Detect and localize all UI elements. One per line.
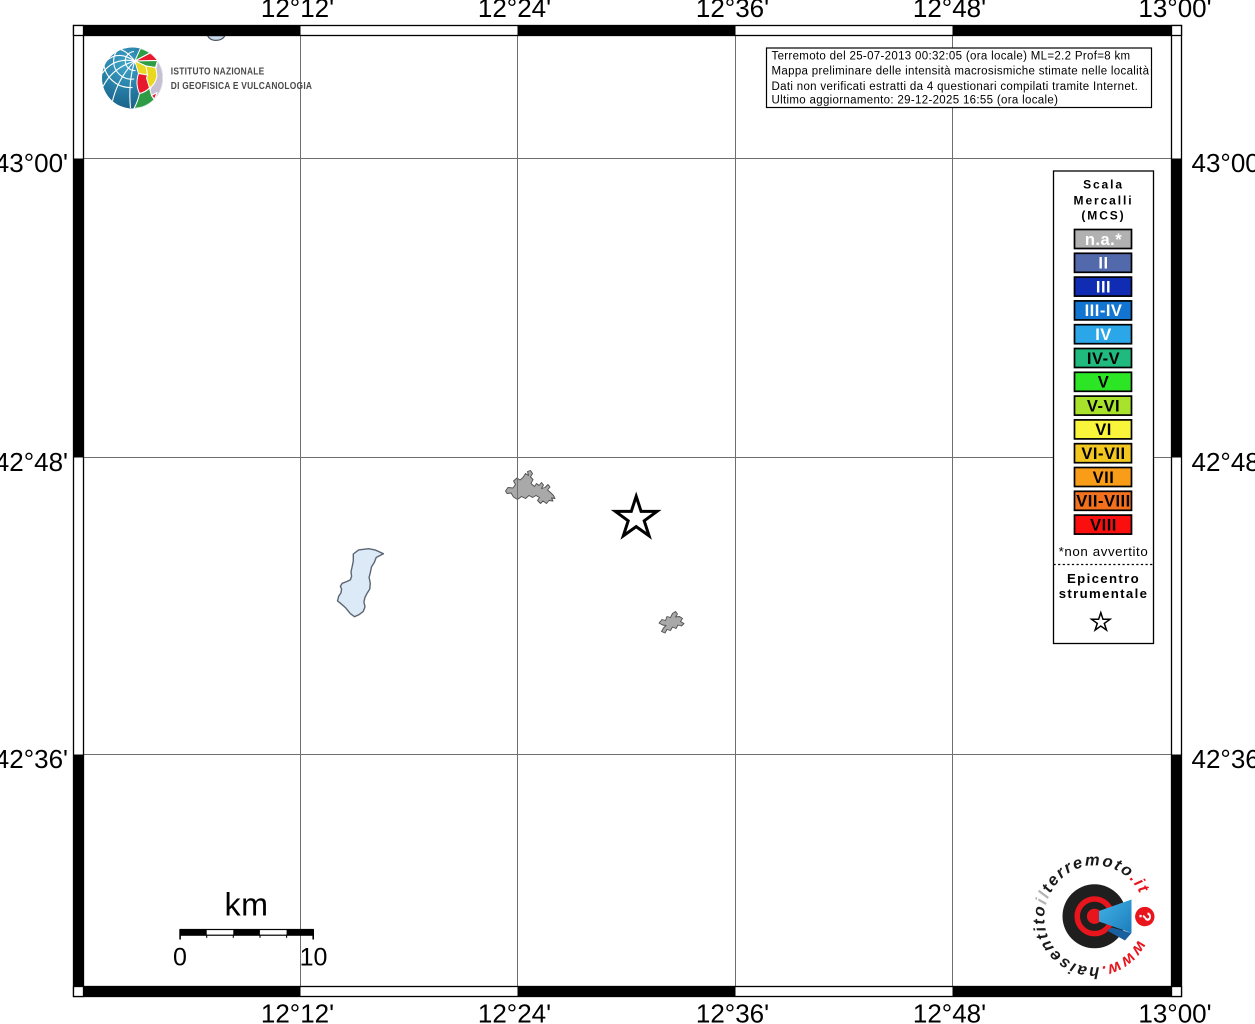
svg-text:IV-V: IV-V [1087, 350, 1120, 368]
svg-text:III-IV: III-IV [1085, 302, 1123, 320]
svg-text:12°48': 12°48' [913, 0, 986, 23]
svg-text:VIII: VIII [1090, 516, 1117, 534]
svg-text:IV: IV [1095, 326, 1112, 344]
svg-text:12°12': 12°12' [261, 998, 334, 1024]
svg-text:Mappa preliminare delle intens: Mappa preliminare delle intensità macros… [772, 66, 1150, 78]
svg-text:(MCS): (MCS) [1081, 208, 1125, 222]
svg-text:VI-VII: VI-VII [1081, 445, 1125, 463]
svg-text:Scala: Scala [1083, 177, 1124, 191]
svg-text:DI GEOFISICA E VULCANOLOGIA: DI GEOFISICA E VULCANOLOGIA [171, 80, 312, 92]
svg-text:*non avvertito: *non avvertito [1059, 544, 1149, 559]
svg-text:12°36': 12°36' [696, 0, 769, 23]
svg-text:V: V [1098, 374, 1110, 392]
svg-text:Mercalli: Mercalli [1074, 193, 1134, 207]
svg-text:42°36': 42°36' [1192, 744, 1255, 774]
svg-text:0: 0 [173, 944, 187, 972]
svg-text:km: km [224, 886, 268, 922]
svg-text:12°24': 12°24' [478, 998, 551, 1024]
svg-text:42°36': 42°36' [0, 744, 68, 774]
svg-text:Terremoto del 25-07-2013 00:32: Terremoto del 25-07-2013 00:32:05 (ora l… [772, 51, 1131, 63]
svg-text:II: II [1098, 255, 1108, 273]
svg-text:?: ? [1135, 911, 1153, 922]
svg-text:42°48': 42°48' [0, 447, 68, 477]
svg-text:43°00': 43°00' [1192, 148, 1255, 178]
svg-text:13°00': 13°00' [1138, 998, 1211, 1024]
svg-text:V-VI: V-VI [1087, 397, 1120, 415]
svg-text:Ultimo aggiornamento: 29-12-20: Ultimo aggiornamento: 29-12-2025 16:55 (… [772, 95, 1059, 107]
svg-text:VI: VI [1095, 421, 1112, 439]
svg-text:12°24': 12°24' [478, 0, 551, 23]
svg-text:III: III [1096, 278, 1111, 296]
svg-text:Epicentro: Epicentro [1067, 571, 1140, 586]
svg-text:10: 10 [300, 944, 328, 972]
svg-text:n.a.*: n.a.* [1085, 231, 1122, 249]
svg-text:strumentale: strumentale [1059, 586, 1149, 601]
svg-text:VII-VIII: VII-VIII [1076, 493, 1130, 511]
svg-text:Dati non verificati estratti d: Dati non verificati estratti da 4 questi… [772, 81, 1139, 93]
svg-text:13°00': 13°00' [1138, 0, 1211, 23]
svg-text:43°00': 43°00' [0, 148, 68, 178]
svg-text:12°12': 12°12' [261, 0, 334, 23]
svg-text:42°48': 42°48' [1192, 447, 1255, 477]
svg-text:12°48': 12°48' [913, 998, 986, 1024]
svg-text:VII: VII [1093, 469, 1115, 487]
svg-text:ISTITUTO NAZIONALE: ISTITUTO NAZIONALE [171, 65, 265, 77]
svg-text:12°36': 12°36' [696, 998, 769, 1024]
